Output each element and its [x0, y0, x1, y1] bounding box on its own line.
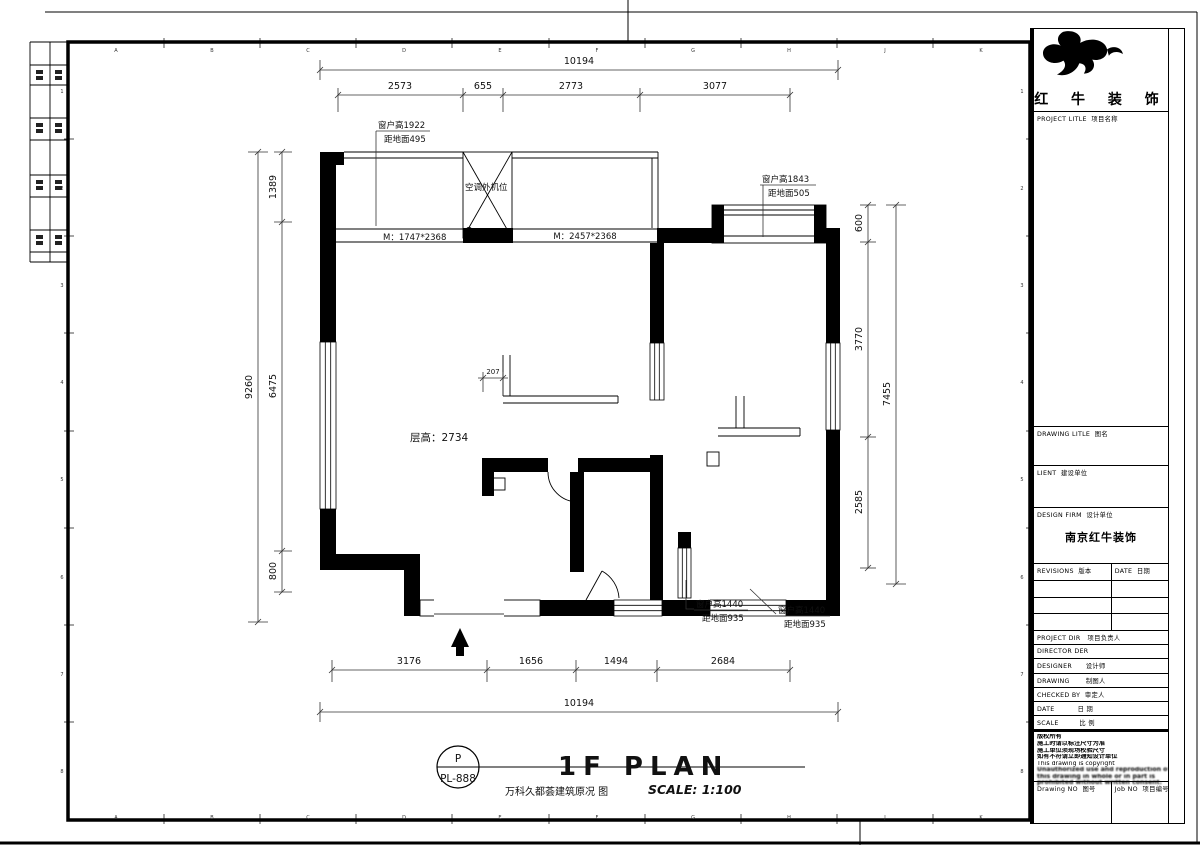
dim-left-seg: 1389 [268, 175, 279, 199]
ceiling-height-label: 层高：2734 [410, 431, 469, 444]
drawing-by-row: DRAWING 制图人 [1034, 674, 1168, 688]
frame-number: 5 [60, 477, 63, 483]
checked-by-row: CHECKED BY 审定人 [1034, 688, 1168, 702]
dim-top-seg: 2573 [388, 81, 412, 92]
window-right [826, 343, 840, 430]
sheet-subtitle: 万科久都荟建筑原况 图 [505, 785, 608, 798]
note-line: 版权所有 [1037, 734, 1168, 741]
project-title-label: PROJECT LITLE 项目名称 [1034, 112, 1168, 123]
design-firm-value: 南京红牛装饰 [1034, 529, 1168, 545]
strip-glyph-marks [36, 70, 62, 245]
frame-number: 7 [60, 672, 63, 678]
frame-letter: C [306, 815, 310, 821]
project-dir-row: PROJECT DIR 项目负责人 [1034, 631, 1168, 645]
frame-number: 6 [60, 575, 63, 581]
dim-left-outer: 9260 [244, 375, 255, 399]
note-line: This drawing is copyright [1037, 761, 1168, 768]
window-label-bottom1-1: 窗户高1440 [696, 599, 743, 610]
dim-left-seg: 800 [268, 562, 279, 580]
project-title-box: PROJECT LITLE 项目名称 [1034, 112, 1168, 427]
revision-row [1034, 614, 1168, 630]
redbull-logo-icon [1034, 29, 1130, 81]
window-label-bottom2-1: 窗户高1440 [778, 605, 825, 616]
drawing-number-row: Drawing NO 图号 Job NO 项目编号 [1034, 782, 1168, 823]
sheet-scale: SCALE: 1:100 [648, 782, 742, 797]
frame-number: 4 [1020, 380, 1023, 386]
dim-right-outer: 7455 [882, 382, 893, 406]
frame-letter: J [883, 815, 885, 821]
window-label-bottom2-2: 距地面935 [784, 619, 826, 630]
frame-number: 4 [60, 380, 63, 386]
frame-letter: D [402, 48, 406, 54]
frame-letter: G [691, 48, 695, 54]
dim-bottom-total: 10194 [564, 698, 594, 709]
scale-label: SCALE 比 例 [1034, 718, 1095, 727]
window-label-topright-1: 窗户高1843 [762, 174, 809, 185]
title-block-side-column [1169, 29, 1184, 823]
door-label-left: M：1747*2368 [383, 233, 446, 243]
frame-number: 8 [1020, 769, 1023, 775]
revisions-label: REVISIONS 版本 [1034, 564, 1112, 580]
frame-letter: K [979, 48, 983, 54]
window-bottom-1 [614, 600, 662, 616]
director-row: DIRECTOR DER [1034, 645, 1168, 659]
dim-top-seg: 655 [474, 81, 492, 92]
date-row: DATE 日 期 [1034, 702, 1168, 716]
frame-letter: B [210, 815, 214, 821]
frame-number: 2 [60, 186, 63, 192]
dim-right-seg: 2585 [854, 490, 865, 514]
dim-bottom-seg: 1494 [604, 656, 628, 667]
frame-number: 6 [1020, 575, 1023, 581]
revision-row [1034, 581, 1168, 598]
checked-by-label: CHECKED BY 审定人 [1034, 690, 1105, 699]
scale-row: SCALE 比 例 [1034, 716, 1168, 730]
frame-letter: G [691, 815, 695, 821]
frame-number: 5 [1020, 477, 1023, 483]
design-firm-label: DESIGN FIRM 设计单位 [1034, 508, 1168, 519]
job-no-label: Job NO 项目编号 [1112, 782, 1168, 823]
frame-letter: E [498, 48, 501, 54]
dim-bottom-seg: 1656 [519, 656, 543, 667]
note-line: 施工单位须现场校验尺寸 [1037, 748, 1168, 755]
plan-annotations: 窗户高1922 距地面495 空调外机位 M：1747*2368 M：2457*… [376, 120, 830, 630]
frame-number: 1 [1020, 89, 1023, 95]
dim-top-seg: 3077 [703, 81, 727, 92]
dim-bottom-seg: 3176 [397, 656, 421, 667]
ac-unit-label: 空调外机位 [465, 182, 508, 193]
left-revision-strip [30, 42, 68, 262]
frame-number: 3 [1020, 283, 1023, 289]
frame-letter: F [596, 815, 599, 821]
frame-number: 1 [60, 89, 63, 95]
brand-name: 红 牛 装 饰 [1034, 89, 1168, 109]
title-tag-letter: P [455, 753, 461, 765]
dim-top-seg: 2773 [559, 81, 583, 92]
drawing-title-label: DRAWING LITLE 图名 [1034, 427, 1168, 438]
copyright-notes: 版权所有 施工时请以标注尺寸为准 施工单位须现场校验尺寸 如有不符请立即通知设计… [1034, 730, 1168, 782]
frame-number: 8 [60, 769, 63, 775]
project-dir-label: PROJECT DIR 项目负责人 [1034, 633, 1120, 642]
ac-unit-box [463, 152, 512, 238]
client-label: LIENT 建设单位 [1034, 466, 1168, 477]
frame-letter: E [498, 815, 501, 821]
dim-top-total: 10194 [564, 56, 594, 67]
frame-letter: D [402, 815, 406, 821]
window-label-topleft-1: 窗户高1922 [378, 120, 425, 131]
frame-grid-ticks [64, 38, 1036, 824]
frame-grid-letters: A B C D E F G H J K A B C D E F G H J K … [60, 48, 1023, 821]
sidelight-interior [650, 343, 664, 400]
frame-number: 3 [60, 283, 63, 289]
drawing-by-label: DRAWING 制图人 [1034, 676, 1106, 685]
floor-plan-drawing: A B C D E F G H J K A B C D E F G H J K … [0, 0, 1200, 845]
dim-right-seg: 3770 [854, 327, 865, 351]
frame-letter: F [596, 48, 599, 54]
revisions-table: REVISIONS 版本 DATE 日期 [1034, 564, 1168, 631]
bay-window [712, 205, 826, 243]
plan-title-group: P PL-888 1F PLAN 万科久都荟建筑原况 图 SCALE: 1:10… [437, 746, 805, 798]
frame-letter: H [787, 48, 791, 54]
director-label: DIRECTOR DER [1034, 648, 1088, 655]
entrance-arrow-icon [451, 628, 469, 656]
note-line: 施工时请以标注尺寸为准 [1037, 741, 1168, 748]
dim-small-offset: 207 [486, 368, 499, 376]
sheet-title: 1F PLAN [558, 752, 729, 782]
designer-row: DESIGNER 设计师 [1034, 659, 1168, 673]
dim-right-seg: 600 [854, 214, 865, 232]
dim-left-seg: 6475 [268, 374, 279, 398]
window-left [320, 342, 336, 509]
cad-sheet: A B C D E F G H J K A B C D E F G H J K … [0, 0, 1200, 845]
revision-date-label: DATE 日期 [1112, 564, 1168, 580]
note-line: 如有不符请立即通知设计单位 [1037, 754, 1168, 761]
title-tag-code: PL-888 [440, 773, 476, 785]
frame-letter: A [114, 48, 118, 54]
date-label: DATE 日 期 [1034, 704, 1093, 713]
title-block: 红 牛 装 饰 PROJECT LITLE 项目名称 DRAWING LITLE… [1030, 28, 1185, 824]
frame-letter: J [883, 48, 885, 54]
drawing-no-label: Drawing NO 图号 [1034, 782, 1112, 823]
note-line-illegible: this drawing in whole or in part is [1037, 774, 1168, 781]
client-box: LIENT 建设单位 [1034, 466, 1168, 508]
note-line-illegible: Unauthorized use and reproduction of [1037, 767, 1168, 774]
door-label-mid: M：2457*2368 [553, 232, 616, 242]
frame-letter: A [114, 815, 118, 821]
designer-label: DESIGNER 设计师 [1034, 661, 1106, 670]
plan-walls [320, 152, 840, 616]
drawing-title-box: DRAWING LITLE 图名 [1034, 427, 1168, 466]
frame-letter: H [787, 815, 791, 821]
window-label-topleft-2: 距地面495 [384, 134, 426, 145]
logo-area: 红 牛 装 饰 [1034, 29, 1168, 112]
frame-letter: B [210, 48, 214, 54]
frame-letter: C [306, 48, 310, 54]
window-label-bottom1-2: 距地面935 [702, 613, 744, 624]
revision-row [1034, 598, 1168, 615]
dim-bottom-seg: 2684 [711, 656, 735, 667]
frame-number: 2 [1020, 186, 1023, 192]
frame-number: 7 [1020, 672, 1023, 678]
sheet-frame [0, 0, 1200, 845]
window-vertical-small [678, 548, 691, 598]
design-firm-box: DESIGN FIRM 设计单位 南京红牛装饰 [1034, 508, 1168, 564]
window-label-topright-2: 距地面505 [768, 188, 810, 199]
